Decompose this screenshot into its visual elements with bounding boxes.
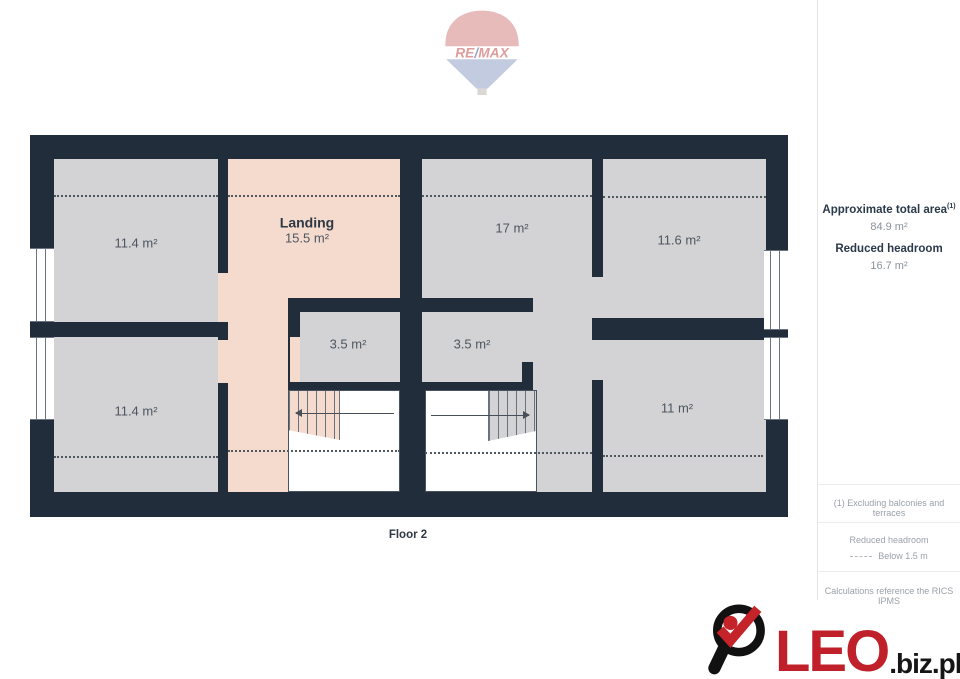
window-icon [764,250,788,330]
room-area-label: 11.4 m² [114,404,157,419]
leo-logo: LEO .biz.pl [705,600,960,676]
sidebar-divider [818,484,960,485]
reduced-headroom-line [422,195,592,197]
dashed-line-icon [850,556,872,557]
total-area-value: 84.9 m² [818,221,960,233]
legend-item: Below 1.5 m [818,551,960,561]
window-icon [764,337,788,420]
reduced-headroom-line [603,455,763,457]
room-area-label: 11.6 m² [657,233,700,248]
leo-wordmark: LEO [775,628,888,676]
window-icon [30,248,54,322]
door-opening [290,337,300,382]
total-area-text: Approximate total area [822,204,947,216]
reduced-headroom-line [425,452,592,454]
reduced-headroom-line [54,195,218,197]
door-opening [218,273,228,322]
stairs-direction-arrow [431,415,529,416]
room-bottom-right [603,340,766,492]
reduced-headroom-line [228,195,400,197]
remax-wordmark: RE/MAX [455,45,509,60]
room-area-label: 17 m² [495,221,528,236]
room-area-label: 3.5 m² [454,337,491,352]
reduced-headroom-line [603,196,766,198]
total-area-label: Approximate total area(1) [818,203,960,216]
stairwell-left [288,390,400,492]
sidebar-divider [818,522,960,523]
door-opening [522,312,533,362]
floor-title: Floor 2 [389,529,427,541]
stairwell-right [425,390,537,492]
footnote-ref: (1) [947,203,956,210]
door-opening [592,340,603,380]
legend-title: Reduced headroom [818,535,960,545]
magnifier-checkmark-icon [705,600,771,676]
room-name-label: Landing 15.5 m² [280,215,334,246]
room-area-label: 3.5 m² [330,337,367,352]
hallway-right [533,298,592,492]
sidebar-divider [818,571,960,572]
reduced-headroom-line [228,450,400,452]
door-opening [592,277,603,318]
landing-name: Landing [280,215,334,231]
footnote-exclusions: (1) Excluding balconies and terraces [818,498,960,518]
door-opening [218,340,228,383]
room-landing-corridor [228,298,288,492]
reduced-headroom-line [54,456,218,458]
room-area-label: 11.4 m² [114,236,157,251]
remax-balloon-icon: RE/MAX [438,6,526,96]
page: RE/MAX [0,0,960,679]
leo-domain-suffix: .biz.pl [889,651,960,676]
window-icon [30,337,54,420]
room-area-label: 11 m² [661,401,693,416]
legend-item-text: Below 1.5 m [878,551,928,561]
reduced-headroom-label: Reduced headroom [818,243,960,255]
landing-area: 15.5 m² [285,231,329,246]
stairs-direction-arrow [296,413,394,414]
reduced-headroom-value: 16.7 m² [818,260,960,272]
floor-plan: 11.4 m² Landing 15.5 m² 17 m² 11.6 m² 3.… [30,135,788,517]
